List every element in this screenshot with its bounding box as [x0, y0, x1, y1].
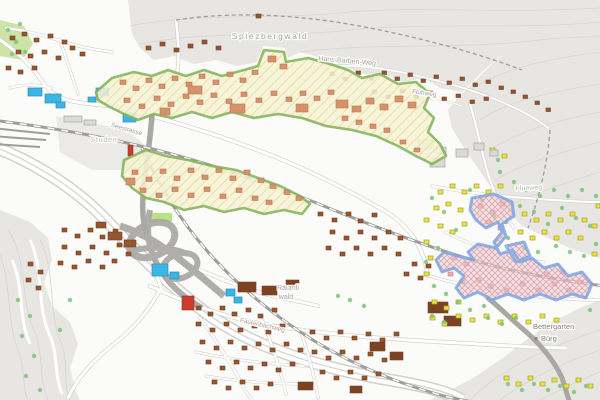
label-raeumli-line1: Räumli — [277, 285, 299, 292]
map-canvas[interactable]: Spiezbergwald Hans-Barben-Weg Fluhweg Fl… — [0, 0, 600, 400]
label-flueweg: Flueweg — [516, 184, 543, 192]
map-svg: Spiezbergwald Hans-Barben-Weg Fluhweg Fl… — [0, 0, 600, 400]
label-spiezbergwald: Spiezbergwald — [232, 31, 309, 41]
label-bettergarten: Bettergarten — [533, 322, 574, 331]
label-raeumli-line2: wald — [278, 294, 294, 301]
label-buerg: Bürg — [541, 334, 557, 343]
label-studen: Studen — [91, 137, 118, 144]
locality-dot-buerg — [534, 337, 537, 340]
